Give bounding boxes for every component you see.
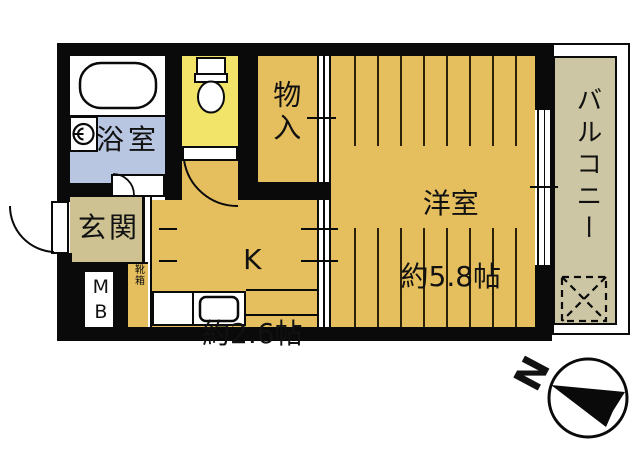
kitchen-name: K xyxy=(243,243,261,276)
western-room-floor-upper xyxy=(331,56,535,146)
bathroom-label: 浴室 xyxy=(96,124,160,156)
compass-north-label: N xyxy=(506,350,560,399)
toilet-door xyxy=(182,146,238,161)
wall-bath-bottom xyxy=(57,183,113,197)
compass-north-icon xyxy=(549,359,627,437)
sliding-door-lower xyxy=(317,200,331,327)
wall-top xyxy=(57,43,552,56)
sliding-door-upper xyxy=(317,56,331,182)
wall-right-lower xyxy=(535,265,552,327)
wall-storage-bottom xyxy=(258,182,331,200)
entrance-label: 玄関 xyxy=(78,212,140,244)
balcony-window xyxy=(537,110,552,265)
kitchen-label: K 約2.6帖 xyxy=(152,205,317,390)
shoe-cabinet-label: 靴箱 xyxy=(132,264,144,286)
bathroom-door xyxy=(111,174,165,197)
wall-left-below-door xyxy=(57,253,72,262)
balcony-label: バルコニー xyxy=(571,86,601,246)
western-room-name: 洋室 xyxy=(423,187,479,220)
entrance-door xyxy=(51,201,69,254)
kitchen-floor-upper xyxy=(182,160,238,202)
wall-toilet-storage xyxy=(238,43,258,200)
wall-bath-toilet xyxy=(165,43,182,200)
toilet-floor xyxy=(182,56,238,147)
kitchen-size: 約2.6帖 xyxy=(202,317,303,350)
wall-left-upper xyxy=(57,43,70,202)
entrance-door-swing xyxy=(10,206,54,252)
meter-box-label: MB xyxy=(89,276,111,326)
wall-right-upper xyxy=(535,43,552,110)
storage-label: 物入 xyxy=(269,80,301,146)
western-room-label: 洋室 約5.8帖 xyxy=(331,150,535,332)
western-room-size: 約5.8帖 xyxy=(401,260,502,293)
floor-plan: 浴室 玄関 MB 靴箱 K 約2.6帖 物入 洋室 約5.8帖 バルコニー N xyxy=(0,0,640,467)
